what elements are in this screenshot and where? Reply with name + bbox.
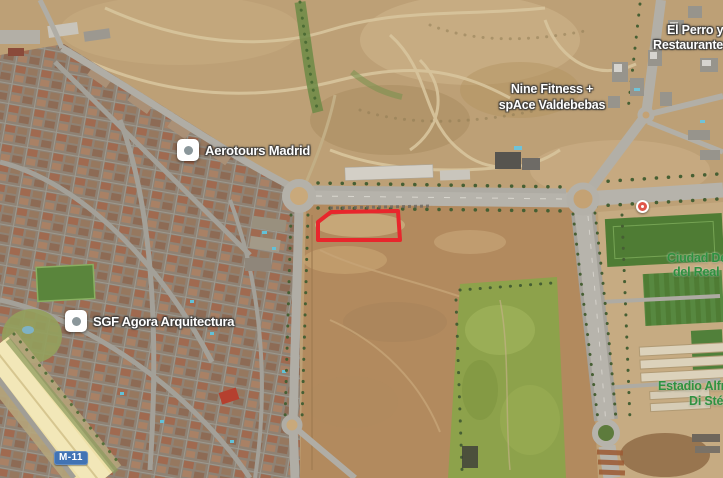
poi-box-icon — [65, 310, 87, 332]
poi-el-perro-line2: Restaurante — [653, 38, 723, 53]
road-badge-m11: M-11 — [54, 447, 88, 465]
green-meadow — [448, 277, 566, 478]
area-label-ciudad-deportiva[interactable]: Ciudad De del Real — [667, 251, 723, 279]
ciudad-line1: Ciudad De — [667, 251, 723, 265]
poi-box-icon — [177, 139, 199, 161]
poi-nine-fitness-line2: spAce Valdebebas — [492, 97, 612, 113]
poi-aerotours-label: Aerotours Madrid — [205, 143, 310, 158]
estadio-line2: Di Stéf — [689, 394, 723, 409]
poi-aerotours-madrid[interactable]: Aerotours Madrid — [177, 139, 310, 161]
map-viewport[interactable]: Aerotours Madrid SGF Agora Arquitectura … — [0, 0, 723, 478]
poi-sgf-agora[interactable]: SGF Agora Arquitectura — [65, 310, 234, 332]
restaurant-poi-marker-icon[interactable] — [636, 200, 649, 213]
satellite-map[interactable] — [0, 0, 723, 478]
area-label-estadio-di-stefano[interactable]: Estadio Alfr Di Stéf — [658, 379, 723, 409]
roundabout-small-north — [640, 109, 652, 121]
poi-nine-fitness[interactable]: Nine Fitness + spAce Valdebebas — [492, 81, 612, 113]
poi-nine-fitness-line1: Nine Fitness + — [492, 81, 612, 97]
roundabout-east — [570, 186, 596, 212]
estadio-line1: Estadio Alfr — [658, 379, 723, 394]
roundabout-small-south — [284, 417, 300, 433]
roundabout-west — [286, 183, 312, 209]
poi-sgf-label: SGF Agora Arquitectura — [93, 314, 234, 329]
poi-dot-icon — [72, 317, 81, 326]
ciudad-line2: del Real — [673, 265, 723, 279]
m11-shield-icon: M-11 — [54, 451, 88, 465]
poi-el-perro-line1: El Perro y — [667, 23, 723, 38]
poi-el-perro-restaurante[interactable]: El Perro y Restaurante — [653, 23, 723, 53]
poi-dot-icon — [184, 146, 193, 155]
roundabout-south-green — [595, 422, 617, 444]
